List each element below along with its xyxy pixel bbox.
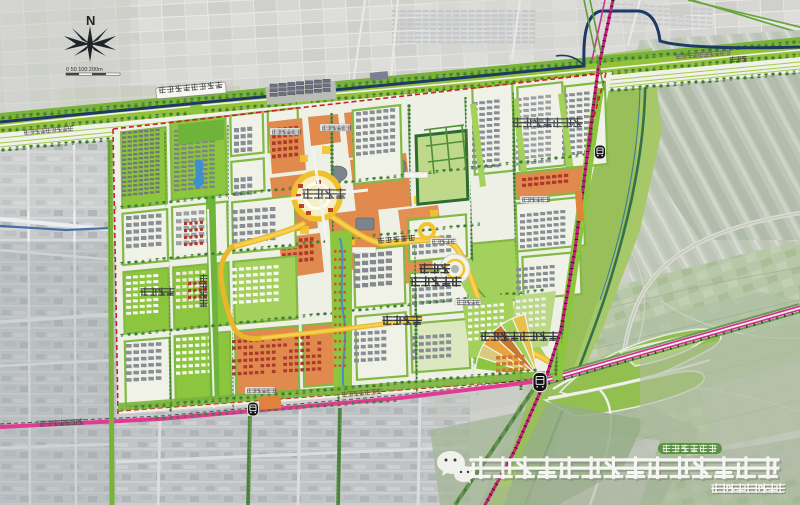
svg-text:0 50 100 200m: 0 50 100 200m bbox=[66, 67, 103, 73]
svg-text:N: N bbox=[86, 13, 95, 28]
